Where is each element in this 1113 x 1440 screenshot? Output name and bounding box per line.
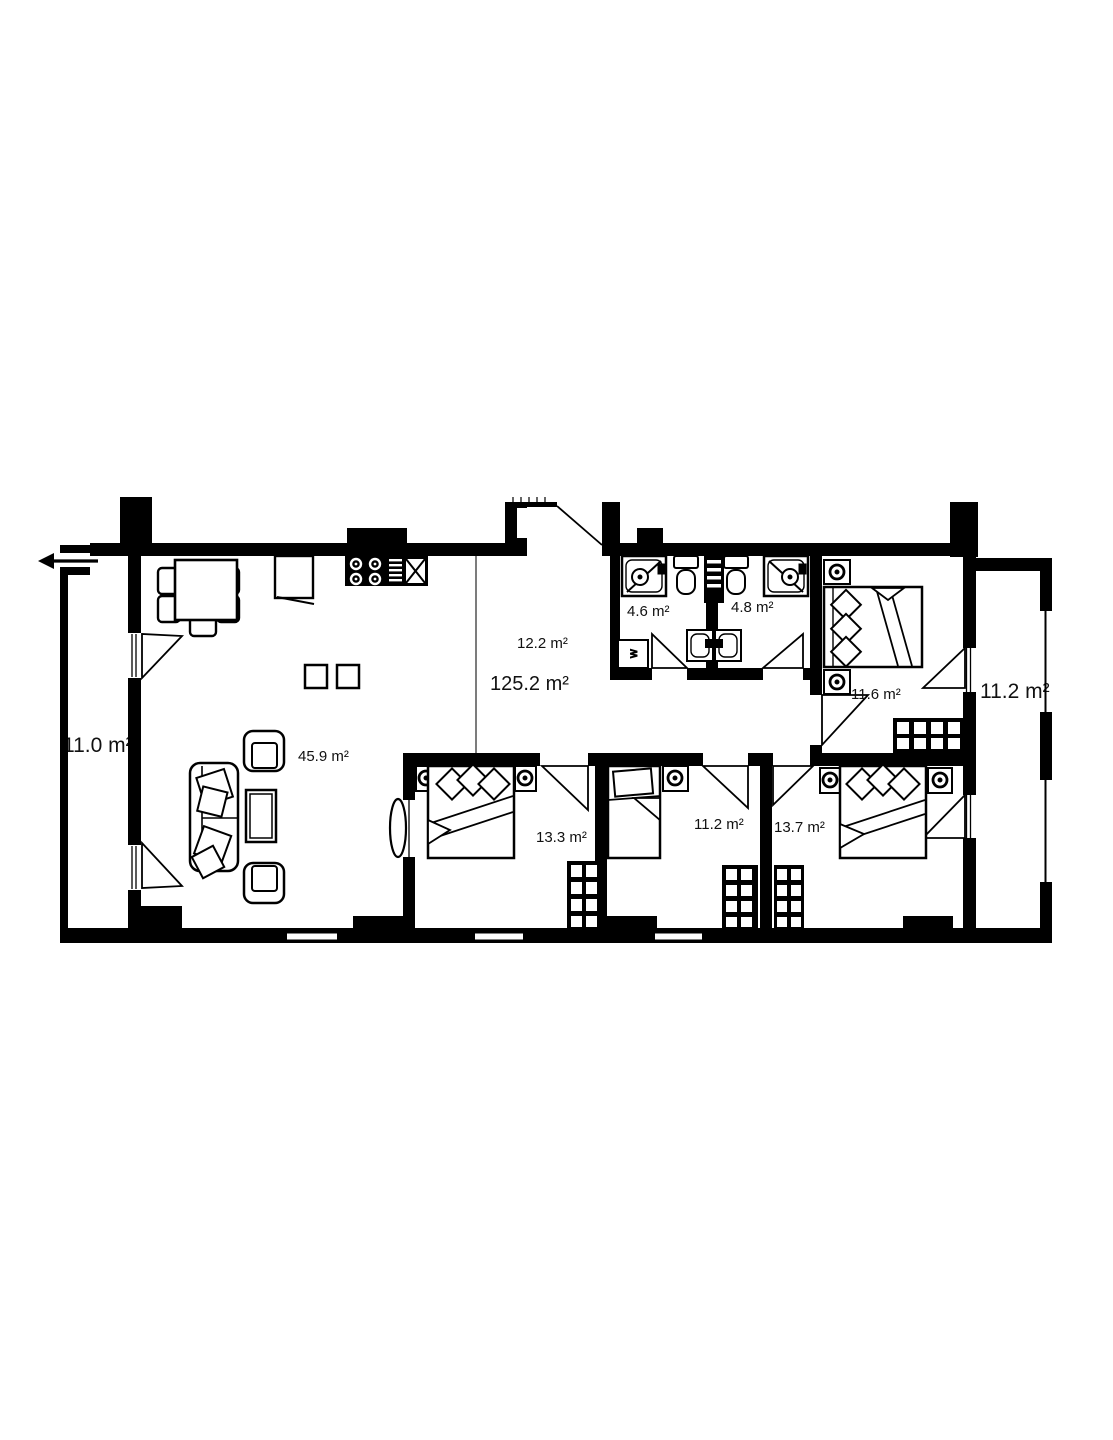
dining-set [158, 560, 239, 636]
hall-area-label: 12.2 m² [517, 635, 568, 652]
sofa [190, 763, 238, 878]
bedroom-door-swing [542, 766, 588, 810]
balcony-left-area-label: 11.0 m² [63, 734, 133, 757]
double-bed [824, 587, 922, 667]
bedroom-bottom-middle-area-label: 11.2 m² [694, 816, 744, 833]
washbasins [687, 630, 741, 661]
double-bed [428, 764, 514, 858]
floor-plan: 11.0 m² 11.2 m² [0, 0, 1113, 1440]
shower [622, 556, 666, 596]
floor-plan-page: { "floor_plan": { "unit_total_area": "12… [0, 0, 1113, 1440]
balcony-door-swing [142, 843, 182, 888]
balcony-door-swing [142, 634, 182, 678]
pocket-door [390, 799, 406, 857]
total-area-label: 125.2 m² [490, 673, 569, 695]
bedroom-top-right-furniture [824, 560, 963, 753]
entry-arrow-icon [38, 553, 98, 569]
washing-machine: w [618, 640, 648, 668]
pouf [305, 665, 327, 688]
bathroom-large-area-label: 4.8 m² [731, 599, 774, 616]
bedroom-bottom-right-furniture [774, 764, 952, 928]
double-bed [840, 764, 926, 858]
living-room-area-label: 45.9 m² [298, 748, 349, 765]
kitchen-sink [403, 556, 428, 586]
pouf [337, 665, 359, 688]
wardrobe [567, 861, 603, 930]
bedroom-bottom-left-area-label: 13.3 m² [536, 829, 587, 846]
coffee-table [246, 790, 276, 842]
armchair-seat [252, 866, 277, 891]
bathroom-door-swing [763, 634, 803, 668]
bedroom-door-swing [773, 766, 813, 805]
single-bed [608, 766, 660, 858]
kitchen-drainer [387, 556, 404, 586]
bathroom-large-fixtures [724, 556, 808, 596]
pillow [613, 768, 653, 796]
bedroom-top-right-area-label: 11.6 m² [851, 686, 901, 703]
shower [764, 556, 808, 596]
toilet [674, 556, 698, 594]
entry-door-leaf [557, 506, 602, 545]
bedroom-door-swing [703, 766, 748, 808]
balcony-door-swing [923, 648, 965, 688]
balcony-right-area-label: 11.2 m² [980, 680, 1050, 703]
wardrobe [774, 865, 804, 928]
balcony-door-swing [923, 795, 965, 838]
wardrobe [893, 718, 963, 753]
kitchen-counter [275, 556, 314, 604]
armchair-seat [252, 743, 277, 768]
sofa-group [190, 731, 284, 903]
wardrobe [722, 865, 758, 928]
bathroom-small-area-label: 4.6 m² [627, 603, 670, 620]
bedroom-bottom-right-area-label: 13.7 m² [774, 819, 825, 836]
bathroom-door-swing [652, 634, 687, 668]
dining-table [175, 560, 237, 620]
toilet [724, 556, 748, 594]
sofa-pillow [197, 786, 227, 816]
kitchen-unit [345, 556, 428, 586]
washing-machine-label: w [626, 649, 640, 659]
kitchen-stove [345, 556, 388, 586]
